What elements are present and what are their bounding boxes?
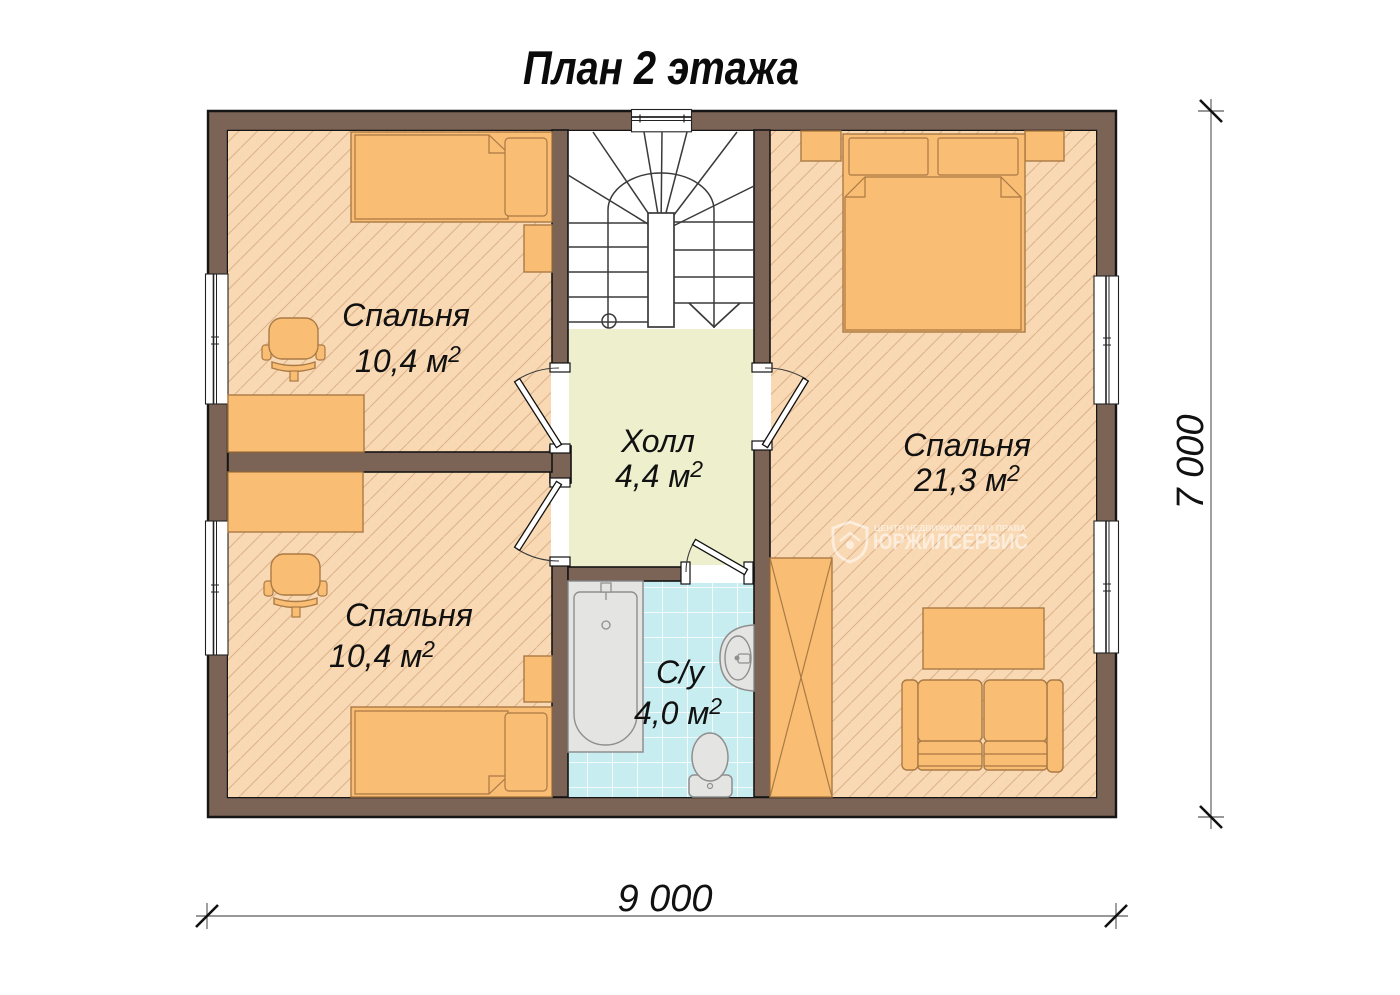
svg-text:ЮРЖИЛСЕРВИС: ЮРЖИЛСЕРВИС: [873, 529, 1028, 554]
svg-text:9 000: 9 000: [617, 878, 712, 920]
svg-text:4,0 м2: 4,0 м2: [634, 693, 722, 731]
svg-text:21,3 м2: 21,3 м2: [913, 460, 1020, 498]
svg-text:7 000: 7 000: [1170, 414, 1212, 509]
svg-text:Холл: Холл: [620, 423, 695, 459]
svg-text:10,4 м2: 10,4 м2: [355, 341, 461, 379]
svg-text:С/у: С/у: [656, 654, 706, 690]
svg-text:4,4 м2: 4,4 м2: [615, 456, 703, 494]
svg-text:Спальня: Спальня: [342, 297, 470, 333]
svg-text:Спальня: Спальня: [345, 597, 473, 633]
svg-text:10,4 м2: 10,4 м2: [329, 636, 435, 674]
svg-text:Спальня: Спальня: [903, 427, 1031, 463]
svg-text:План 2 этажа: План 2 этажа: [523, 41, 799, 94]
